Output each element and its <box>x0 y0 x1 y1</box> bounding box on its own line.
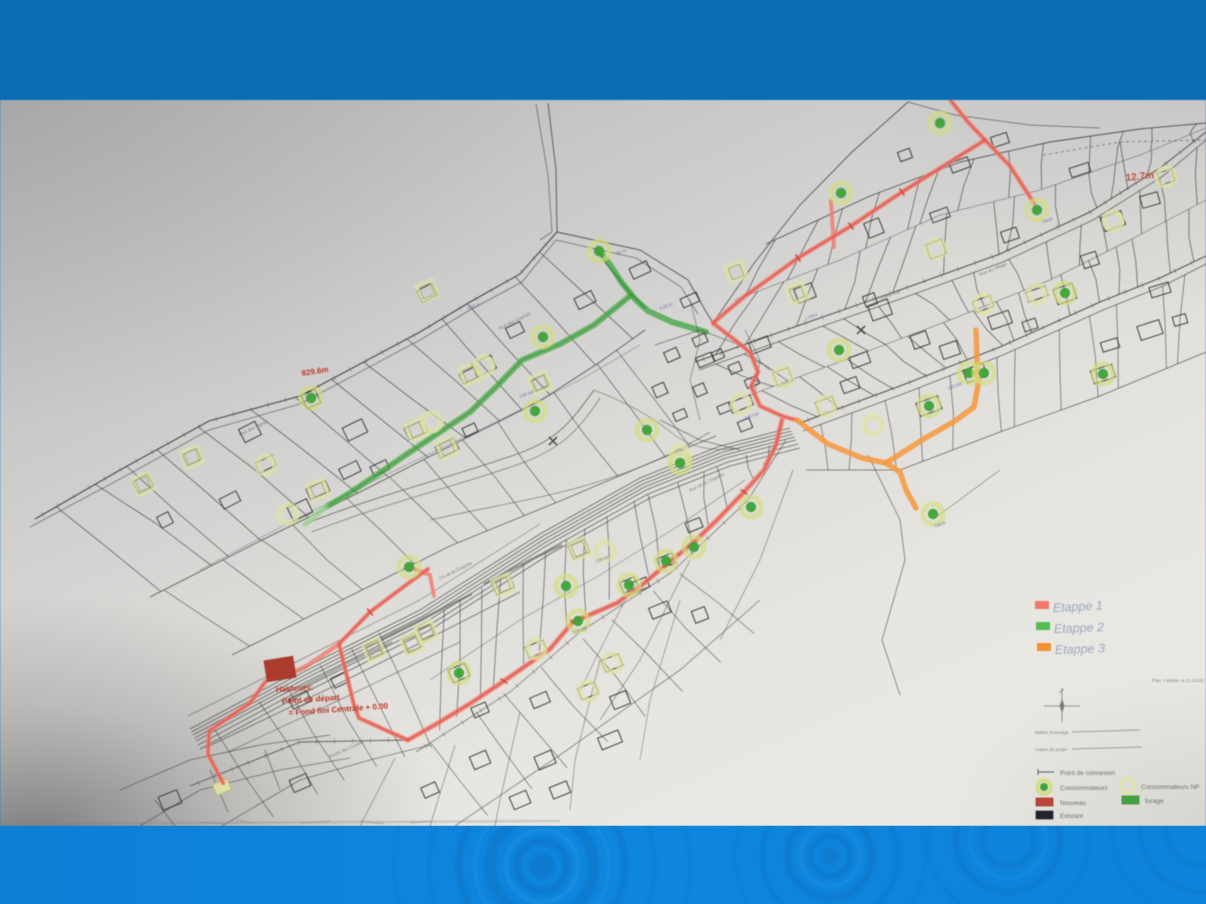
svg-text:Plan 1 Madre, le 21.03.20: Plan 1 Madre, le 21.03.20 <box>1152 678 1204 683</box>
svg-text:Etappe 1: Etappe 1 <box>1052 598 1103 615</box>
svg-text:Consommateurs: Consommateurs <box>1060 785 1108 792</box>
svg-text:Etappe 2: Etappe 2 <box>1054 620 1105 636</box>
svg-text:Etappe 3: Etappe 3 <box>1055 641 1106 657</box>
svg-text:Maître d'ouvrage: Maître d'ouvrage <box>1035 730 1069 735</box>
svg-text:Consommateurs NP: Consommateurs NP <box>1141 784 1200 791</box>
svg-text:Nouveau: Nouveau <box>1060 800 1086 807</box>
svg-text:Existant: Existant <box>1060 813 1083 820</box>
svg-text:Point de connexion: Point de connexion <box>1060 770 1116 777</box>
svg-text:forage: forage <box>1145 798 1164 805</box>
svg-text:Auteur du projet: Auteur du projet <box>1035 747 1068 752</box>
